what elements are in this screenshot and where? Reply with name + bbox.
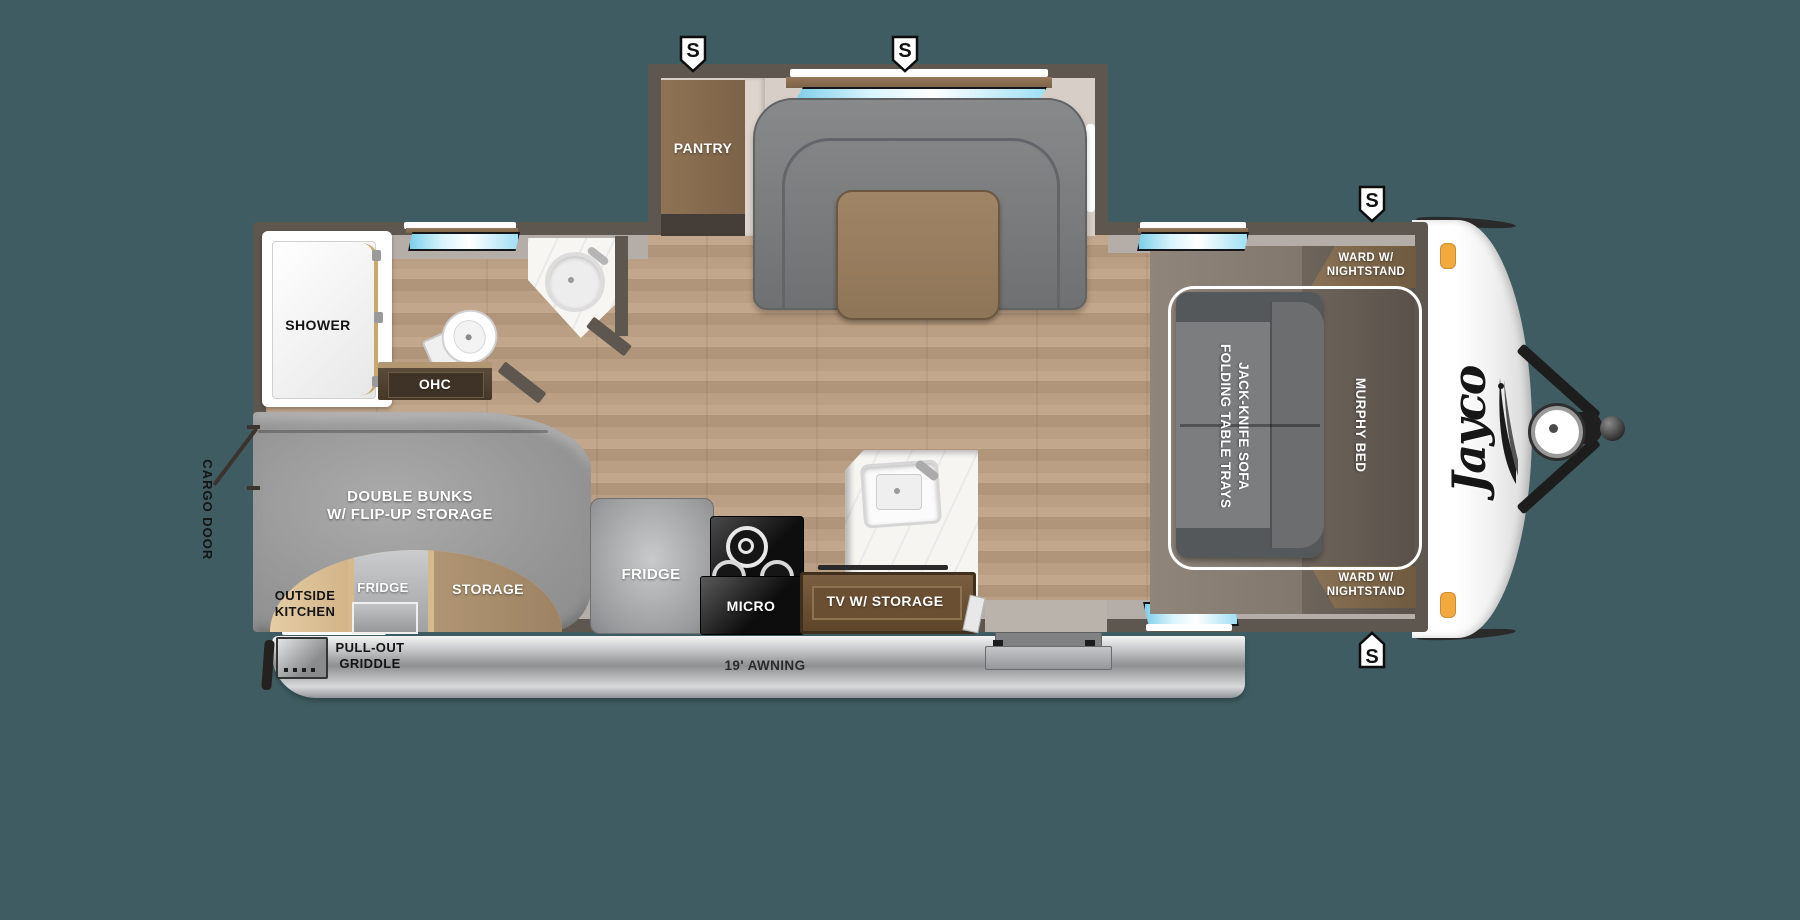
kitchen-fridge-label: FRIDGE xyxy=(590,566,712,584)
bath-sink-drain xyxy=(568,277,574,283)
entry-step-lower xyxy=(985,646,1112,670)
griddle-knobs xyxy=(284,668,318,672)
bunk-top-seam xyxy=(258,430,548,433)
clearance-light-top xyxy=(1440,243,1456,269)
stove-burner-main-center xyxy=(738,538,754,554)
clearance-light-bottom xyxy=(1440,592,1456,618)
ward-bottom-line2: NIGHTSTAND xyxy=(1318,586,1414,600)
storage-label: STORAGE xyxy=(428,581,548,598)
ward-bottom-line1: WARD W/ xyxy=(1318,572,1414,586)
bedroom-window xyxy=(1137,232,1249,251)
outside-kitchen-line2: KITCHEN xyxy=(262,604,348,620)
kitchen-side-window-sill xyxy=(1146,624,1232,631)
speaker-marker-pantry: S xyxy=(678,34,708,74)
pantry-under-shadow xyxy=(661,214,745,236)
double-bunks-label: DOUBLE BUNKS W/ FLIP-UP STORAGE xyxy=(300,488,520,524)
hitch-jack-wheel xyxy=(1531,406,1583,458)
tv-screen-edge xyxy=(818,565,948,570)
brand-logo-text: Jayco xyxy=(1446,367,1492,494)
outside-fridge-label: FRIDGE xyxy=(344,580,422,596)
sofa-label: JACK-KNIFE SOFA FOLDING TABLE TRAYS xyxy=(1216,311,1252,541)
cargo-door-label: CARGO DOOR xyxy=(199,420,215,600)
kitchen-sink-drain xyxy=(894,488,900,494)
bath-partition-wall xyxy=(615,236,628,336)
griddle-label: PULL-OUT GRIDDLE xyxy=(318,640,422,671)
speaker-marker-dinette: S xyxy=(890,34,920,74)
speaker-letter: S xyxy=(1365,190,1378,212)
ward-bottom-label: WARD W/ NIGHTSTAND xyxy=(1318,572,1414,600)
speaker-letter: S xyxy=(898,40,911,62)
speaker-marker-bedroom-bottom: S xyxy=(1357,630,1387,670)
double-bunks-line1: DOUBLE BUNKS xyxy=(300,488,520,506)
bath-window xyxy=(408,232,520,251)
speaker-letter: S xyxy=(686,40,699,62)
griddle-label-line1: PULL-OUT xyxy=(318,640,422,656)
ward-top-line2: NIGHTSTAND xyxy=(1318,266,1414,280)
sofa-label-line1: JACK-KNIFE SOFA xyxy=(1234,311,1252,541)
dinette-table xyxy=(836,190,1000,320)
hitch-jack-wheel-hub xyxy=(1549,424,1558,433)
shower-door-hinge-mid xyxy=(374,312,383,323)
pantry-label: PANTRY xyxy=(661,140,745,157)
outside-kitchen-line1: OUTSIDE xyxy=(262,588,348,604)
shower-label: SHOWER xyxy=(268,317,368,334)
ohc-label: OHC xyxy=(388,376,482,393)
tv-label: TV W/ STORAGE xyxy=(812,593,958,610)
double-bunks-line2: W/ FLIP-UP STORAGE xyxy=(300,506,520,524)
murphy-bed-label: MURPHY BED xyxy=(1352,345,1368,505)
speaker-marker-bedroom-top: S xyxy=(1357,184,1387,224)
outside-fridge-door xyxy=(352,602,418,634)
cargo-door-tick-top xyxy=(247,425,260,429)
ward-top-line1: WARD W/ xyxy=(1318,252,1414,266)
entry-door-opening xyxy=(985,600,1107,632)
outside-kitchen-label: OUTSIDE KITCHEN xyxy=(262,588,348,619)
brand-logo-block: Jayco xyxy=(1441,330,1525,530)
sofa-label-line2: FOLDING TABLE TRAYS xyxy=(1216,311,1234,541)
bath-sink-basin xyxy=(545,252,605,312)
floorplan-canvas: PULL-OUT GRIDDLE 19' AWNING PANTRY S xyxy=(0,0,1800,920)
brand-bird-icon xyxy=(1494,370,1520,490)
shower-door-hinge-top xyxy=(372,250,381,261)
awning-left-edge xyxy=(261,640,274,691)
slide-side-window xyxy=(1086,124,1095,212)
cargo-door-swing-line xyxy=(212,427,258,486)
microwave-label: MICRO xyxy=(700,598,802,615)
slide-window-valance xyxy=(786,77,1052,88)
speaker-letter: S xyxy=(1365,646,1378,668)
ward-top-label: WARD W/ NIGHTSTAND xyxy=(1318,252,1414,280)
awning-label: 19' AWNING xyxy=(690,658,840,674)
griddle-label-line2: GRIDDLE xyxy=(318,656,422,672)
hitch-ball xyxy=(1600,416,1625,441)
cargo-door-tick-bottom xyxy=(247,486,260,490)
